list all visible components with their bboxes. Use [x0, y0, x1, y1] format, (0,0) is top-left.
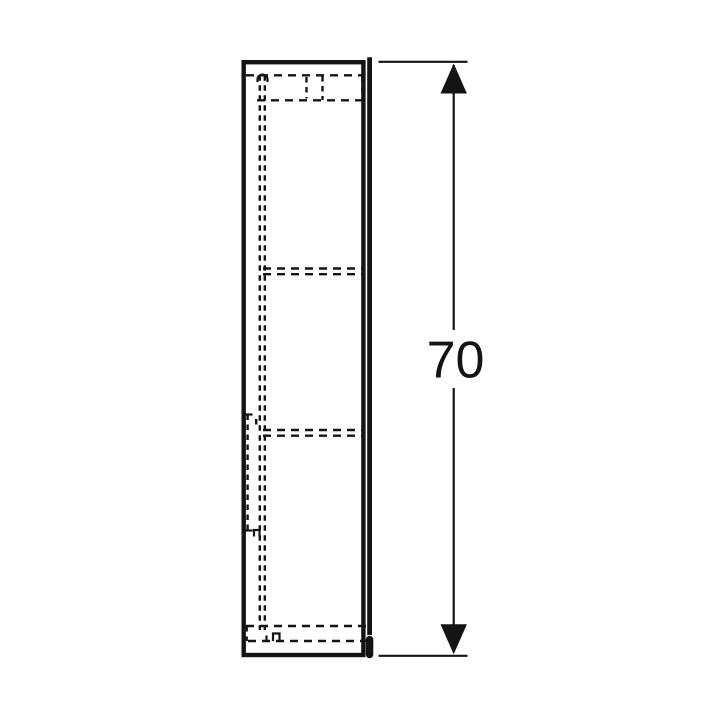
hidden-detail-lines	[244, 75, 368, 641]
cabinet-carcass	[244, 62, 364, 655]
technical-drawing-canvas: 70	[0, 0, 720, 720]
cabinet-side-elevation-drawing: 70	[0, 0, 720, 720]
dimension-annotation: 70	[379, 62, 485, 656]
mounting-rail-bottom-hook	[254, 530, 260, 537]
dimension-arrow-up-icon	[441, 64, 467, 94]
dimension-value-label: 70	[427, 332, 485, 390]
cabinet-body-outline	[244, 62, 364, 655]
dimension-arrow-down-icon	[441, 624, 467, 654]
